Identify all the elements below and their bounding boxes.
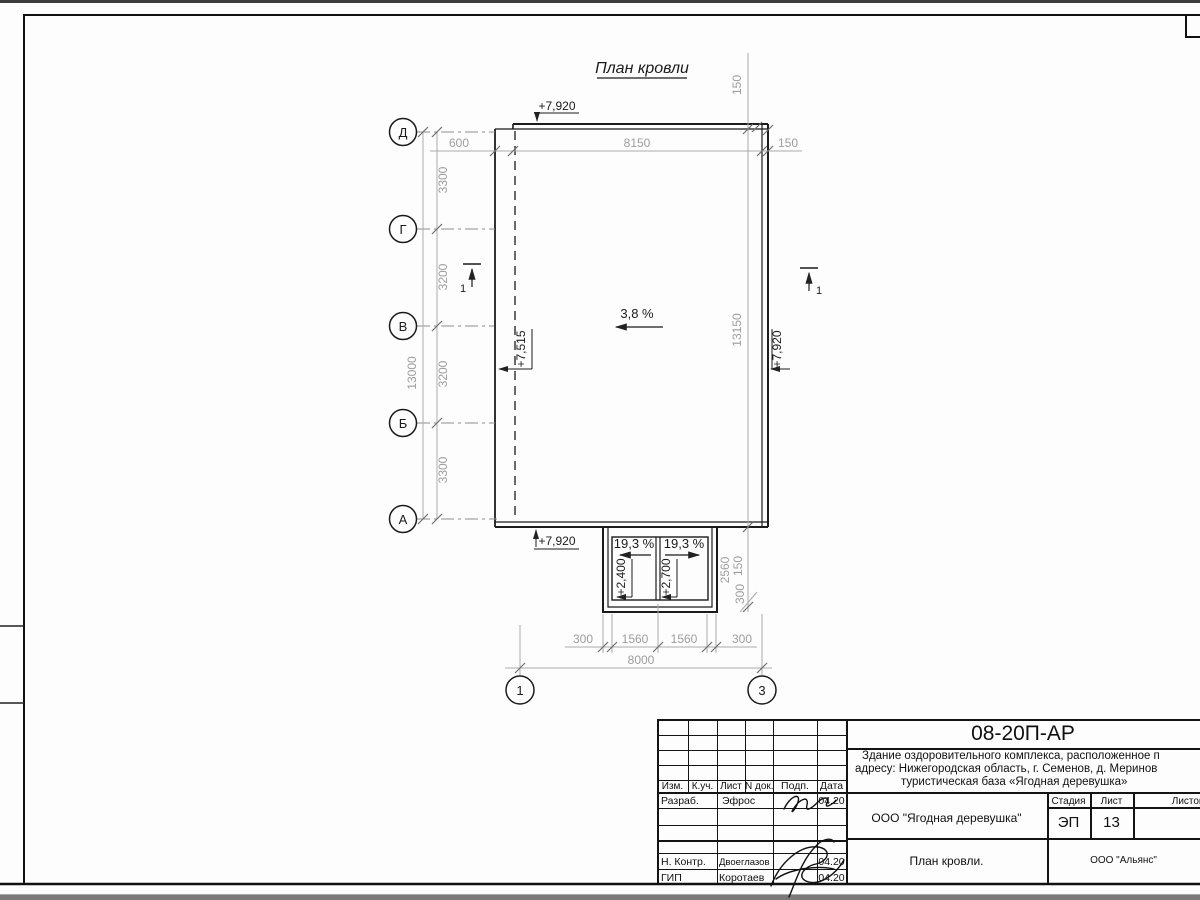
svg-text:+7,920: +7,920 [538, 99, 575, 113]
dim-label: 8150 [624, 136, 651, 150]
row-date: 04.20 [817, 856, 846, 868]
col-ndok: N док. [745, 781, 773, 793]
client-name: ООО "Ягодная деревушка" [846, 812, 1047, 824]
svg-text:+7,920: +7,920 [770, 330, 784, 367]
drawing-title: План кровли [595, 60, 689, 77]
dim-label: 600 [449, 136, 469, 150]
col-izm: Изм. [657, 781, 688, 793]
doc-number: 08-20П-АР [846, 721, 1200, 747]
dim-label: 13000 [405, 356, 419, 390]
roof-outline [495, 124, 768, 527]
elevation-mark-right: +7,920 [770, 329, 790, 369]
section-mark-left: 1 [460, 264, 481, 295]
dim-label: 3200 [436, 263, 450, 290]
dimension-ticks [418, 122, 773, 673]
drawing-sheet: Изм. К.уч. Лист N док. Подп. Дата Разраб… [0, 0, 1200, 900]
row-role: ГИП [661, 872, 682, 884]
dim-label: 3300 [436, 456, 450, 483]
col-podp: Подп. [773, 780, 817, 792]
row-role: Н. Контр. [661, 856, 706, 868]
axis-label: Д [399, 125, 408, 140]
dim-label: 150 [778, 136, 798, 150]
elevation-mark-top: +7,920 [534, 99, 579, 121]
axis-label: В [399, 319, 408, 334]
axis-bubbles-left [390, 119, 417, 533]
axis-label: 1 [516, 683, 523, 698]
project-description-line: туристическая база «Ягодная деревушка» [901, 776, 1127, 788]
sheet-title: План кровли. [846, 855, 1047, 867]
section-mark-right: 1 [800, 268, 822, 297]
svg-text:1: 1 [460, 283, 466, 295]
main-slope-label: 3,8 % [620, 306, 654, 321]
row-role: Разраб. [661, 795, 699, 807]
dim-label: 300 [733, 584, 747, 604]
scan-edge-top [0, 0, 1200, 3]
svg-text:+2,400: +2,400 [614, 558, 628, 595]
stage-label: Стадия [1047, 796, 1090, 808]
sheet-number: 13 [1090, 810, 1133, 836]
dim-label: 150 [730, 75, 744, 95]
col-list: Лист [717, 781, 745, 793]
dim-label: 150 [731, 556, 745, 576]
svg-text:+7,920: +7,920 [538, 534, 575, 548]
stage-value: ЭП [1047, 810, 1090, 836]
elevation-mark-canopy-right: +2,700 [659, 558, 677, 597]
axis-bubbles-bottom [506, 676, 776, 704]
dim-label: 2560 [718, 556, 732, 583]
dim-label: 1560 [622, 632, 649, 646]
axis-lines [417, 132, 497, 519]
axis-label: Г [399, 222, 406, 237]
elevation-mark-left: +7,515 [499, 329, 532, 369]
organization-name: ООО "Альянс" [1047, 855, 1200, 867]
svg-text:+7,515: +7,515 [514, 330, 528, 367]
canopy-slope-label: 19,3 % [614, 536, 655, 551]
project-description-line: адресу: Нижегородская область, г. Семено… [855, 763, 1157, 775]
axis-label: А [399, 512, 408, 527]
dimension-lines [423, 53, 802, 675]
dim-label: 1560 [671, 632, 698, 646]
project-description-line: Здание оздоровительного комплекса, распо… [862, 750, 1160, 762]
elevation-mark-bottom: +7,920 [534, 530, 579, 549]
dim-label: 300 [732, 632, 752, 646]
scan-edge-bottom [0, 894, 1200, 900]
col-data: Дата [817, 780, 846, 792]
col-kuch: К.уч. [688, 781, 717, 793]
canopy-outline [603, 527, 717, 612]
canopy-slope-label: 19,3 % [664, 536, 705, 551]
dim-label: 3200 [436, 360, 450, 387]
dim-label: 13150 [730, 313, 744, 347]
dim-label: 8000 [628, 653, 655, 667]
sheets-label: Листов [1133, 796, 1200, 808]
row-date: 04.20 [817, 795, 846, 807]
row-name: Эфрос [722, 795, 755, 807]
sheet-label: Лист [1090, 796, 1133, 808]
elevation-mark-canopy-left: +2,400 [614, 558, 632, 597]
row-date: 04.20 [817, 872, 846, 884]
dim-label: 300 [573, 632, 593, 646]
svg-text:1: 1 [816, 285, 822, 297]
row-name: Коротаев [719, 872, 764, 884]
axis-label: 3 [758, 683, 765, 698]
axis-label: Б [399, 416, 408, 431]
row-name: Двоеглазов [719, 857, 770, 869]
svg-text:+2,700: +2,700 [659, 558, 673, 595]
dim-label: 3300 [436, 166, 450, 193]
